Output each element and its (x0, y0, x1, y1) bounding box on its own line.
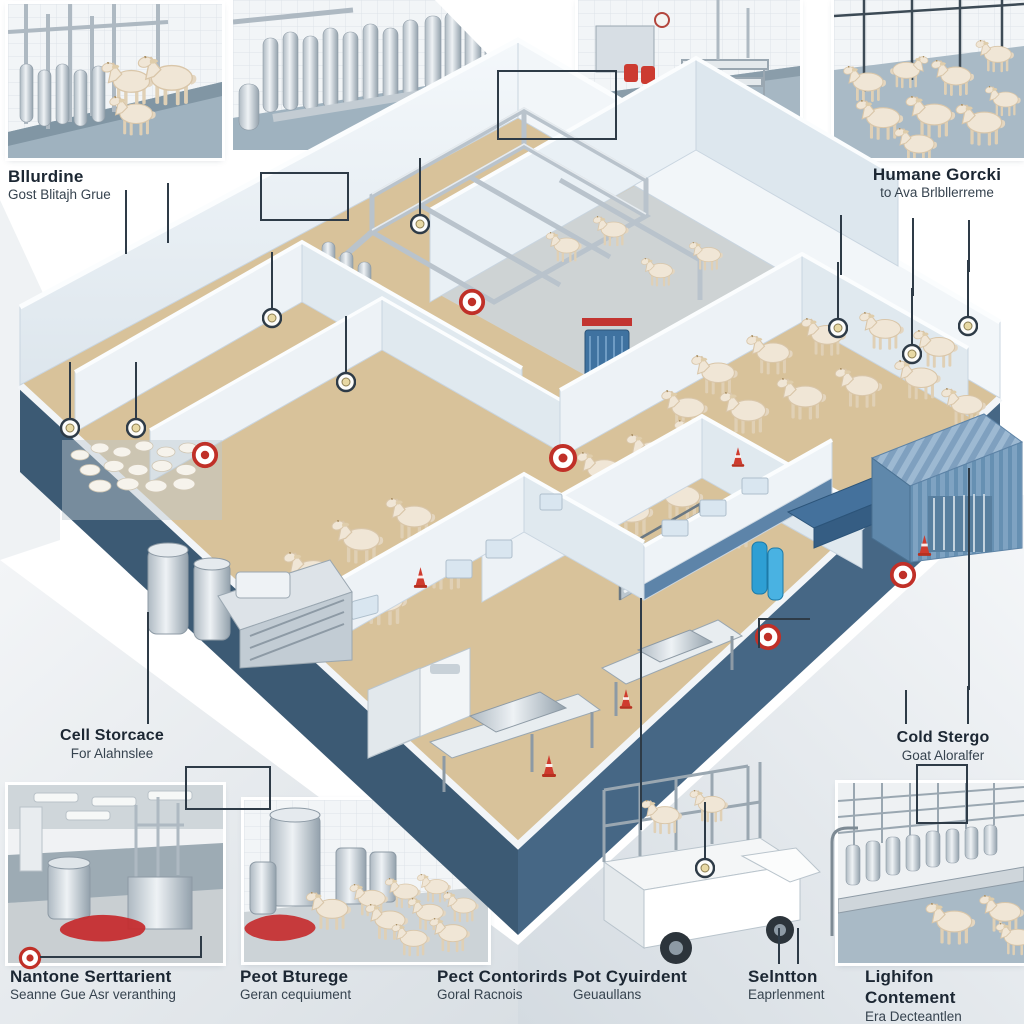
leader-line (968, 468, 970, 690)
staircase (548, 462, 716, 600)
leader-line (758, 618, 760, 648)
inset-photo-goat-pen (834, 0, 1024, 158)
ground-left-strip (0, 200, 60, 560)
goat-pen-right (661, 309, 986, 434)
leader-line-horizontal (758, 618, 810, 620)
leader-line-horizontal (40, 956, 202, 958)
callout-mid-right: Cold Stergo Goat Aloralfer (860, 728, 1024, 765)
leader-line (797, 928, 799, 964)
callout-bottom-1: Nantone Serttarient Seanne Gue Asr veran… (10, 966, 176, 1004)
callout-subtitle: Eaprlenment (748, 987, 825, 1004)
traffic-cones (414, 447, 931, 777)
leader-line (167, 183, 169, 243)
leader-line (840, 215, 842, 275)
loading-shelf (788, 478, 898, 548)
callout-title: Nantone Serttarient (10, 966, 176, 987)
leader-line (968, 220, 970, 272)
equipment-room-floor (440, 155, 880, 400)
inset-photo-tank-room-spill (8, 785, 223, 963)
callout-frame (916, 764, 968, 824)
callout-top-left: Bllurdine Gost Blitajh Grue (8, 166, 111, 204)
leader-line (125, 190, 127, 254)
callout-title: Peot Bturege (240, 966, 351, 987)
callout-subtitle: Goat Aloralfer (860, 748, 1024, 765)
leader-line (912, 218, 914, 296)
callout-mid-left: Cell Storcace For Alahnslee (32, 726, 192, 763)
callout-title: Lighifon Contement (865, 966, 1024, 1009)
callout-subtitle: Goral Racnois (437, 987, 568, 1004)
goat-pen-left (283, 494, 467, 625)
conveyor-machine (218, 560, 352, 668)
leader-line (778, 928, 780, 964)
interior-walls-mid (560, 254, 968, 458)
inset-photo-goats-pipe-room (8, 4, 222, 158)
callout-top-right: Humane Gorcki to Ava Brlbllerreme (850, 164, 1024, 202)
goats-back-rooms (546, 213, 723, 286)
callout-subtitle: For Alahnslee (32, 746, 192, 763)
callout-title: Cold Stergo (860, 728, 1024, 748)
callout-title: Humane Gorcki (850, 164, 1024, 185)
callout-frame (185, 766, 271, 810)
steel-table-1 (430, 692, 600, 792)
callout-bottom-6: Lighifon Contement Era Decteantlen (865, 966, 1024, 1024)
interior-walls-front (332, 416, 862, 642)
callout-title: Pot Cyuirdent (573, 966, 687, 987)
feather-pen (62, 440, 222, 520)
callout-title: Selntton (748, 966, 825, 987)
inset-photo-tanks-goat-herd (244, 800, 488, 962)
steel-table-2 (602, 620, 742, 716)
callout-frame (497, 70, 617, 140)
callout-frame (260, 172, 349, 221)
infographic-canvas: Bllurdine Gost Blitajh Grue Humane Gorck… (0, 0, 1024, 1024)
leader-line (640, 598, 642, 830)
callout-title: Bllurdine (8, 166, 111, 187)
callout-title: Cell Storcace (32, 726, 192, 746)
goat-pen-center (576, 416, 804, 548)
callout-subtitle: Era Decteantlen (865, 1009, 1024, 1024)
cold-storage-shed (872, 414, 1022, 562)
white-machine (368, 648, 470, 758)
livestock-truck (604, 762, 858, 964)
callout-bottom-2: Peot Bturege Geran cequiument (240, 966, 351, 1004)
callout-subtitle: to Ava Brlbllerreme (850, 185, 1024, 202)
leader-line (905, 690, 907, 724)
leader-line (200, 936, 202, 958)
callout-subtitle: Geran cequiument (240, 987, 351, 1004)
leader-line (147, 612, 149, 724)
callout-bottom-5: Selntton Eaprlenment (748, 966, 825, 1004)
leader-line (967, 686, 969, 724)
callout-subtitle: Gost Blitajh Grue (8, 187, 111, 204)
callout-subtitle: Seanne Gue Asr veranthing (10, 987, 176, 1004)
callout-bottom-4: Pot Cyuirdent Geuaullans (573, 966, 687, 1004)
blue-cylinders (752, 542, 783, 600)
callout-subtitle: Geuaullans (573, 987, 687, 1004)
steel-tanks (148, 543, 230, 640)
small-cylinders (322, 242, 371, 314)
interior-walls-upper (75, 242, 564, 482)
callout-bottom-3: Pect Contorirds Goral Racnois (437, 966, 568, 1004)
callout-title: Pect Contorirds (437, 966, 568, 987)
